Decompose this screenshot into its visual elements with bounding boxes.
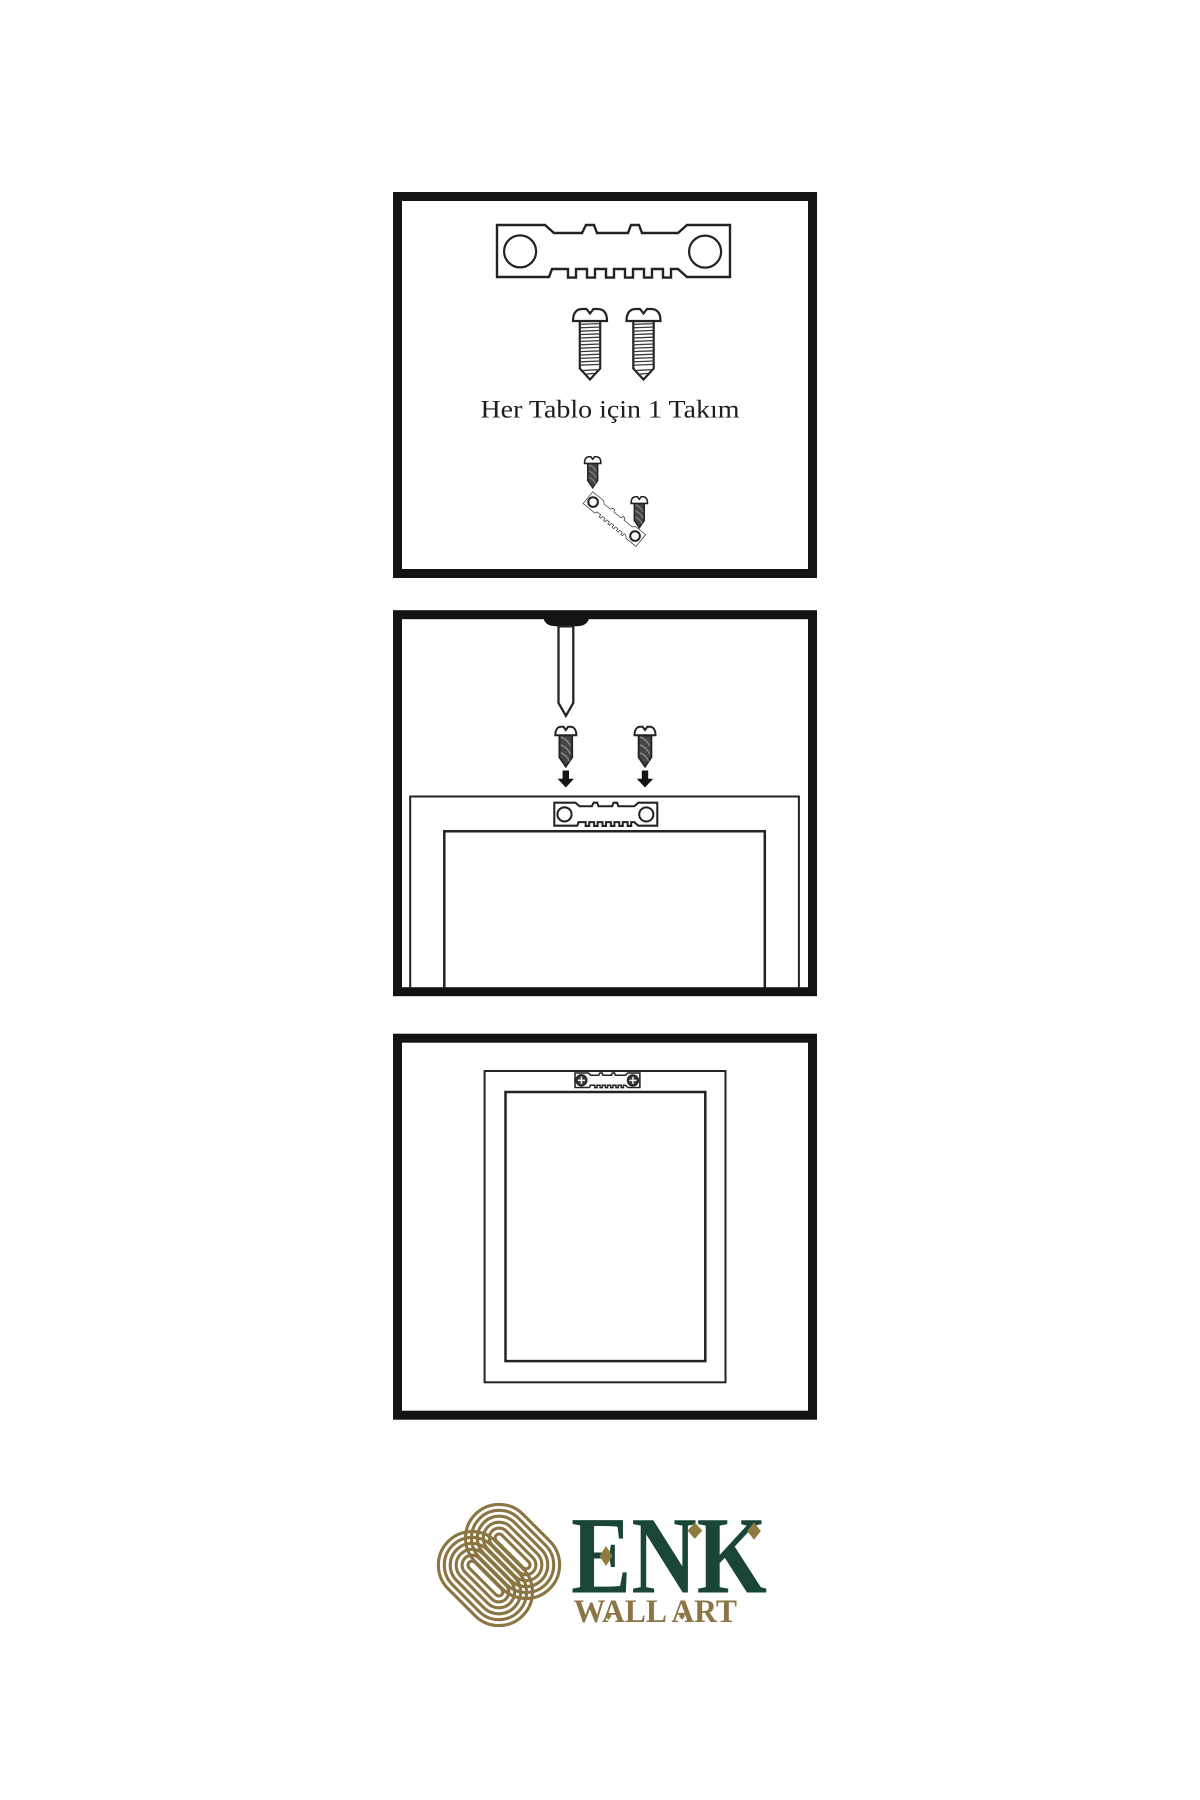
svg-text:Her Tablo için 1 Takım: Her Tablo için 1 Takım xyxy=(481,395,740,424)
svg-text:WALL ART: WALL ART xyxy=(574,1593,737,1630)
